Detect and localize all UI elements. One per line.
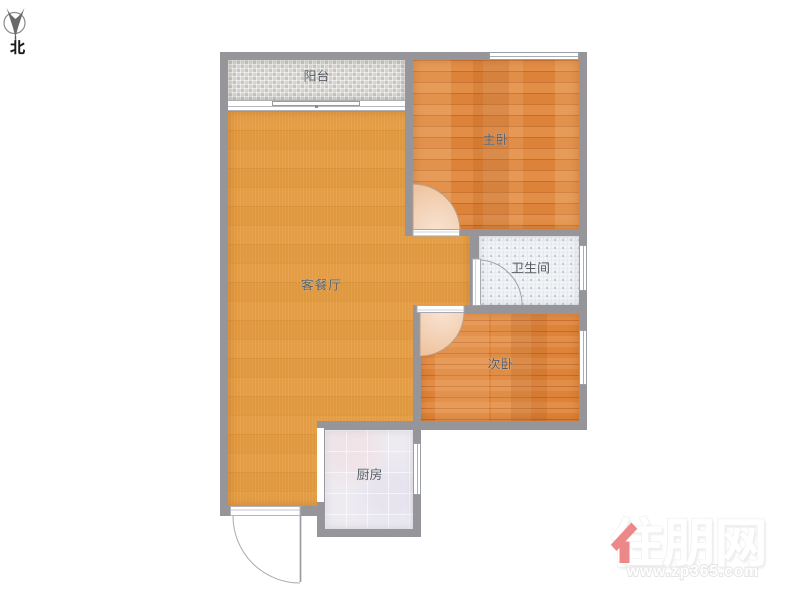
svg-text:www.zp365.com: www.zp365.com (626, 563, 759, 580)
